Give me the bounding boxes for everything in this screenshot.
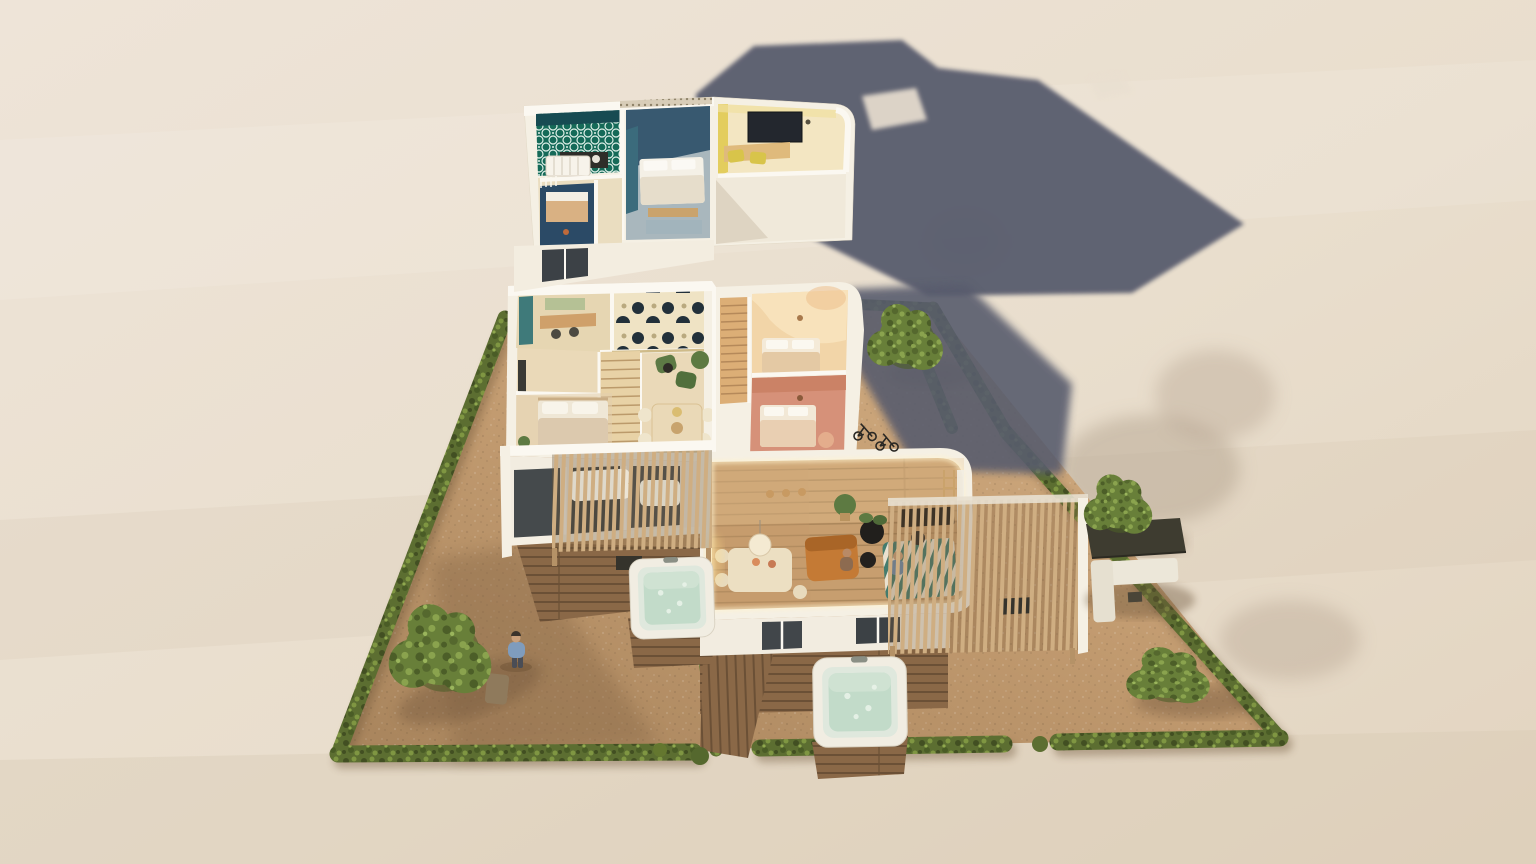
unit-b-staircase xyxy=(720,297,749,404)
stool xyxy=(782,489,790,497)
bush xyxy=(1032,736,1048,752)
office-roof-slab xyxy=(716,174,846,244)
desk-chair xyxy=(569,327,579,337)
yellow-wall xyxy=(718,104,728,176)
pillow xyxy=(542,402,568,414)
pillow xyxy=(766,340,788,349)
stool xyxy=(798,488,806,496)
desk-chair xyxy=(551,329,561,339)
pendant-lamp xyxy=(672,407,682,417)
bush xyxy=(691,747,709,765)
lounge-sofa-side xyxy=(1090,559,1115,622)
hot-tub-left xyxy=(629,556,715,640)
pillow xyxy=(792,340,814,349)
pillow xyxy=(643,160,667,171)
pergola-slats xyxy=(552,450,712,552)
bedroom-pink xyxy=(750,375,846,458)
side-table xyxy=(860,552,876,568)
plant xyxy=(691,351,709,369)
crib xyxy=(546,156,590,176)
pergola-post-white xyxy=(500,446,512,558)
bedroom-peach xyxy=(752,286,848,375)
teal-accent-wall xyxy=(626,126,638,214)
office-chair xyxy=(750,151,767,164)
hot-tub-front xyxy=(812,655,907,747)
patterned-lounge-floor xyxy=(612,289,704,352)
round-rug xyxy=(818,432,834,448)
pillow xyxy=(671,159,695,170)
nook-rug xyxy=(545,298,585,310)
pendant-lamp xyxy=(749,534,771,556)
pergola-right xyxy=(888,494,1088,664)
stool xyxy=(766,490,774,498)
sofa-orange xyxy=(805,534,860,582)
desk-lamp xyxy=(806,120,811,125)
arch-decor xyxy=(806,286,846,310)
office-chair xyxy=(727,149,745,163)
pendant-lamp xyxy=(797,315,803,321)
hedge-south-1 xyxy=(338,752,694,754)
pergola-post xyxy=(552,548,557,566)
home-office xyxy=(718,104,848,176)
scene-svg xyxy=(0,0,1536,864)
pendant-lamp xyxy=(797,395,803,401)
pillow xyxy=(572,402,598,414)
main-bedroom-upper xyxy=(626,106,710,240)
hedge-south-3 xyxy=(1058,738,1280,742)
pillow xyxy=(788,407,808,416)
bed-bench xyxy=(648,208,698,217)
monstera-plant xyxy=(834,494,856,516)
toy xyxy=(563,229,569,235)
bedroom-a xyxy=(516,393,612,452)
sink xyxy=(592,155,600,163)
coffee-table xyxy=(663,363,673,373)
pergola-slats xyxy=(888,498,1082,654)
dining-chair xyxy=(793,585,807,599)
bush xyxy=(653,743,667,757)
tv-unit xyxy=(518,360,526,394)
render-canvas xyxy=(0,0,1536,864)
party-wall xyxy=(712,281,716,462)
pillow xyxy=(546,192,588,201)
pillow xyxy=(764,407,784,416)
tv-screen xyxy=(748,112,802,142)
pergola-post xyxy=(1070,648,1075,664)
teal-cabinet xyxy=(519,296,533,345)
rug xyxy=(646,220,702,234)
lounge-table xyxy=(1128,592,1143,603)
